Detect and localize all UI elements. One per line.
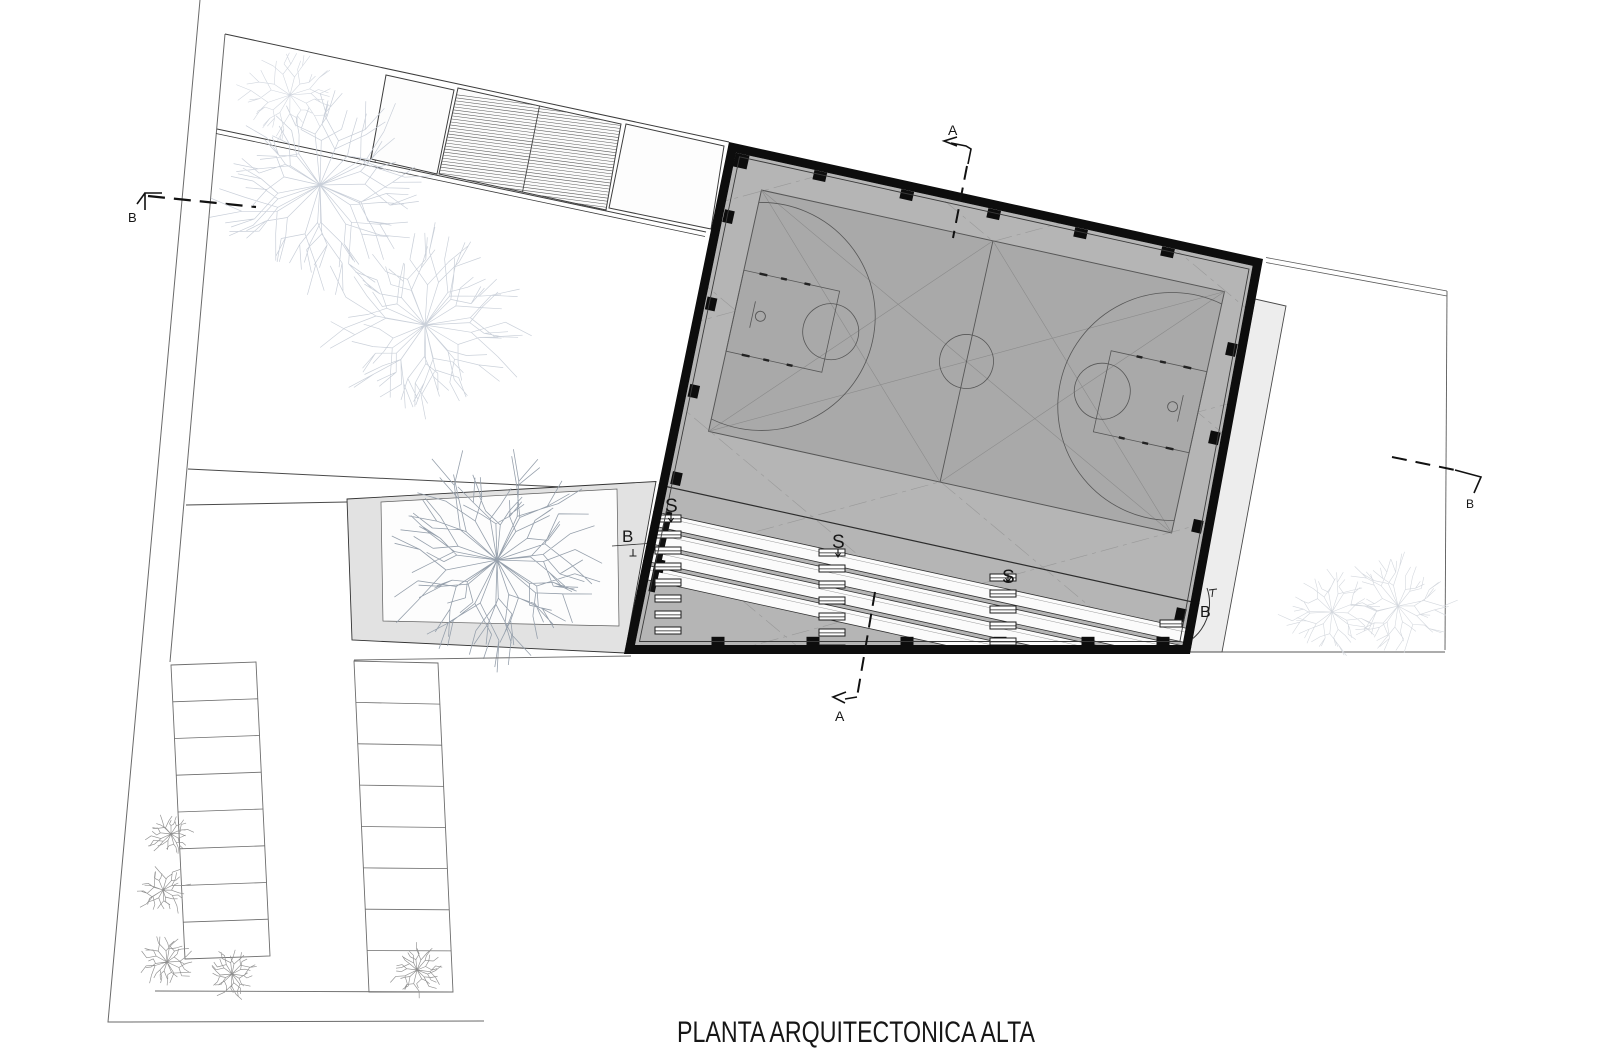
svg-text:A: A [835,708,845,724]
svg-text:B: B [128,210,137,225]
svg-text:S: S [832,532,845,553]
svg-text:A: A [948,122,958,138]
svg-text:S: S [665,496,678,517]
svg-text:PLANTA ARQUITECTONICA ALTA: PLANTA ARQUITECTONICA ALTA [677,1016,1035,1049]
svg-text:B: B [1200,604,1211,621]
svg-text:B: B [1466,497,1474,511]
svg-text:S: S [1002,567,1015,588]
svg-text:B: B [622,527,633,546]
